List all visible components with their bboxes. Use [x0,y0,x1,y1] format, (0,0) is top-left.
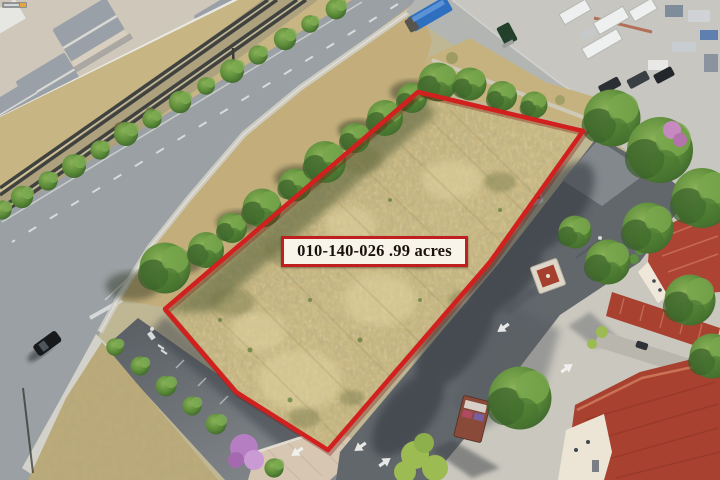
apn-acreage-text: 010-140-026 .99 acres [297,243,452,260]
parcel-label: 010-140-026 .99 acres [281,236,468,267]
watermark-logo-chip [20,3,26,7]
mls-watermark [2,2,27,8]
watermark-text-blur [4,4,19,6]
aerial-photo: 010-140-026 .99 acres [0,0,720,480]
